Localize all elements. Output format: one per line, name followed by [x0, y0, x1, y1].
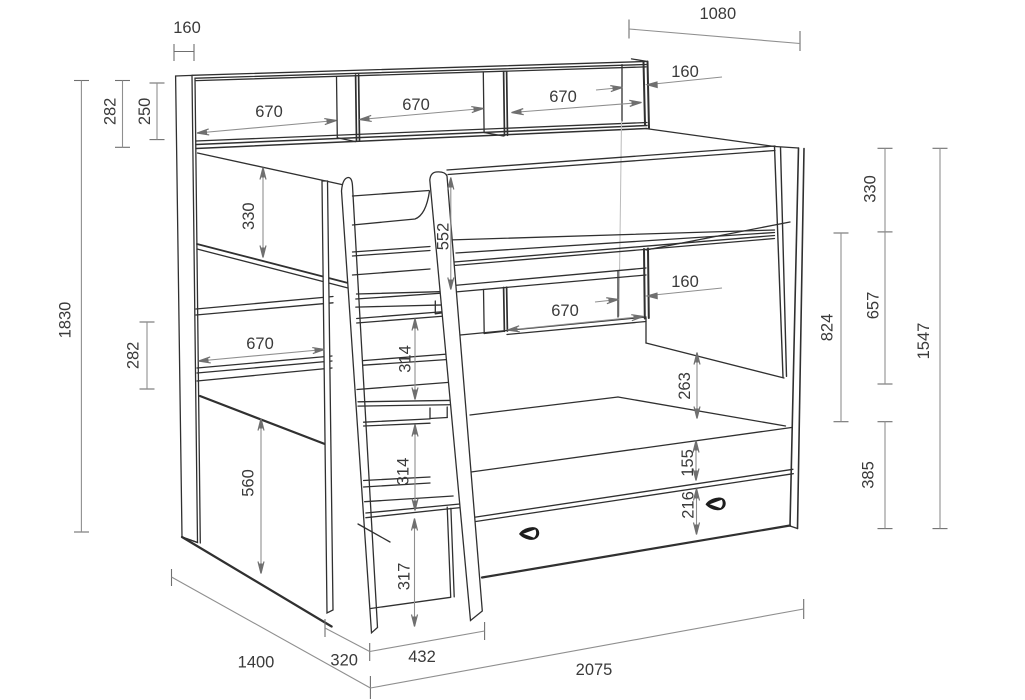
- svg-text:282: 282: [102, 98, 120, 126]
- svg-text:670: 670: [551, 302, 579, 320]
- svg-text:317: 317: [395, 563, 413, 591]
- svg-text:1830: 1830: [56, 302, 74, 339]
- svg-text:824: 824: [818, 314, 836, 342]
- svg-text:657: 657: [864, 292, 882, 320]
- svg-text:250: 250: [136, 98, 154, 126]
- svg-text:670: 670: [246, 335, 274, 353]
- svg-text:320: 320: [330, 651, 358, 669]
- svg-text:160: 160: [671, 63, 699, 81]
- svg-text:160: 160: [173, 19, 201, 37]
- svg-text:670: 670: [255, 103, 283, 121]
- svg-text:1400: 1400: [238, 654, 275, 672]
- svg-text:1547: 1547: [915, 323, 933, 360]
- svg-text:216: 216: [679, 491, 697, 519]
- svg-text:385: 385: [859, 461, 877, 489]
- svg-text:560: 560: [239, 469, 257, 497]
- svg-text:330: 330: [240, 202, 258, 230]
- svg-text:670: 670: [549, 88, 577, 106]
- svg-text:314: 314: [394, 458, 412, 486]
- svg-text:155: 155: [679, 449, 697, 477]
- svg-text:282: 282: [125, 342, 143, 370]
- svg-text:1080: 1080: [699, 5, 736, 23]
- svg-text:263: 263: [676, 372, 694, 400]
- svg-text:314: 314: [396, 345, 414, 373]
- svg-text:552: 552: [434, 223, 452, 251]
- svg-text:670: 670: [402, 96, 430, 114]
- svg-text:330: 330: [861, 175, 879, 203]
- svg-text:2075: 2075: [576, 661, 613, 679]
- svg-text:432: 432: [408, 648, 436, 666]
- svg-text:160: 160: [671, 273, 699, 291]
